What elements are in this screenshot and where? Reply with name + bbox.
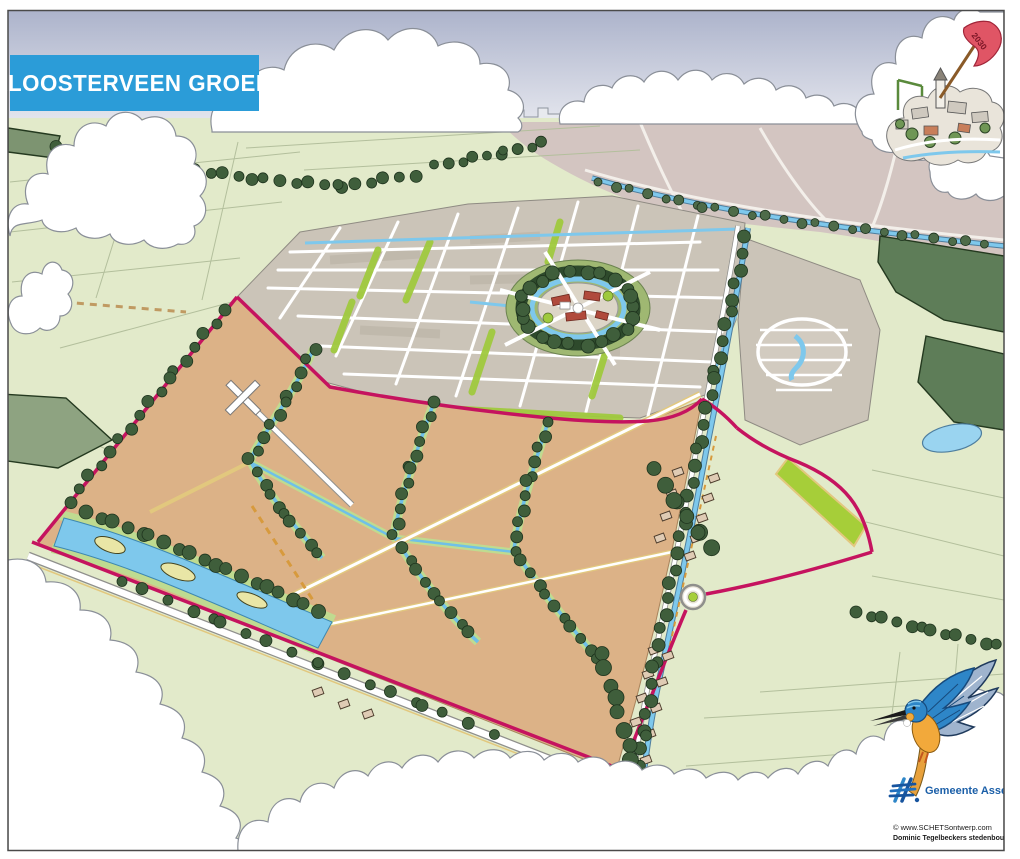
masterplan-illustration: 2030 bbox=[0, 0, 1020, 859]
poster-page: 2030 bbox=[0, 0, 1020, 859]
title-banner-text: “KLOOSTERVEEN GROEIT” bbox=[0, 70, 289, 97]
title-banner: “KLOOSTERVEEN GROEIT” bbox=[10, 55, 259, 111]
roundabout bbox=[681, 585, 705, 609]
credit-line-2: Dominic Tegelbeckers stedenbouw &archite… bbox=[893, 835, 1020, 842]
credit-line-1: © www.SCHETSontwerp.com bbox=[893, 823, 992, 832]
municipality-name: Gemeente Assen bbox=[925, 785, 1014, 797]
